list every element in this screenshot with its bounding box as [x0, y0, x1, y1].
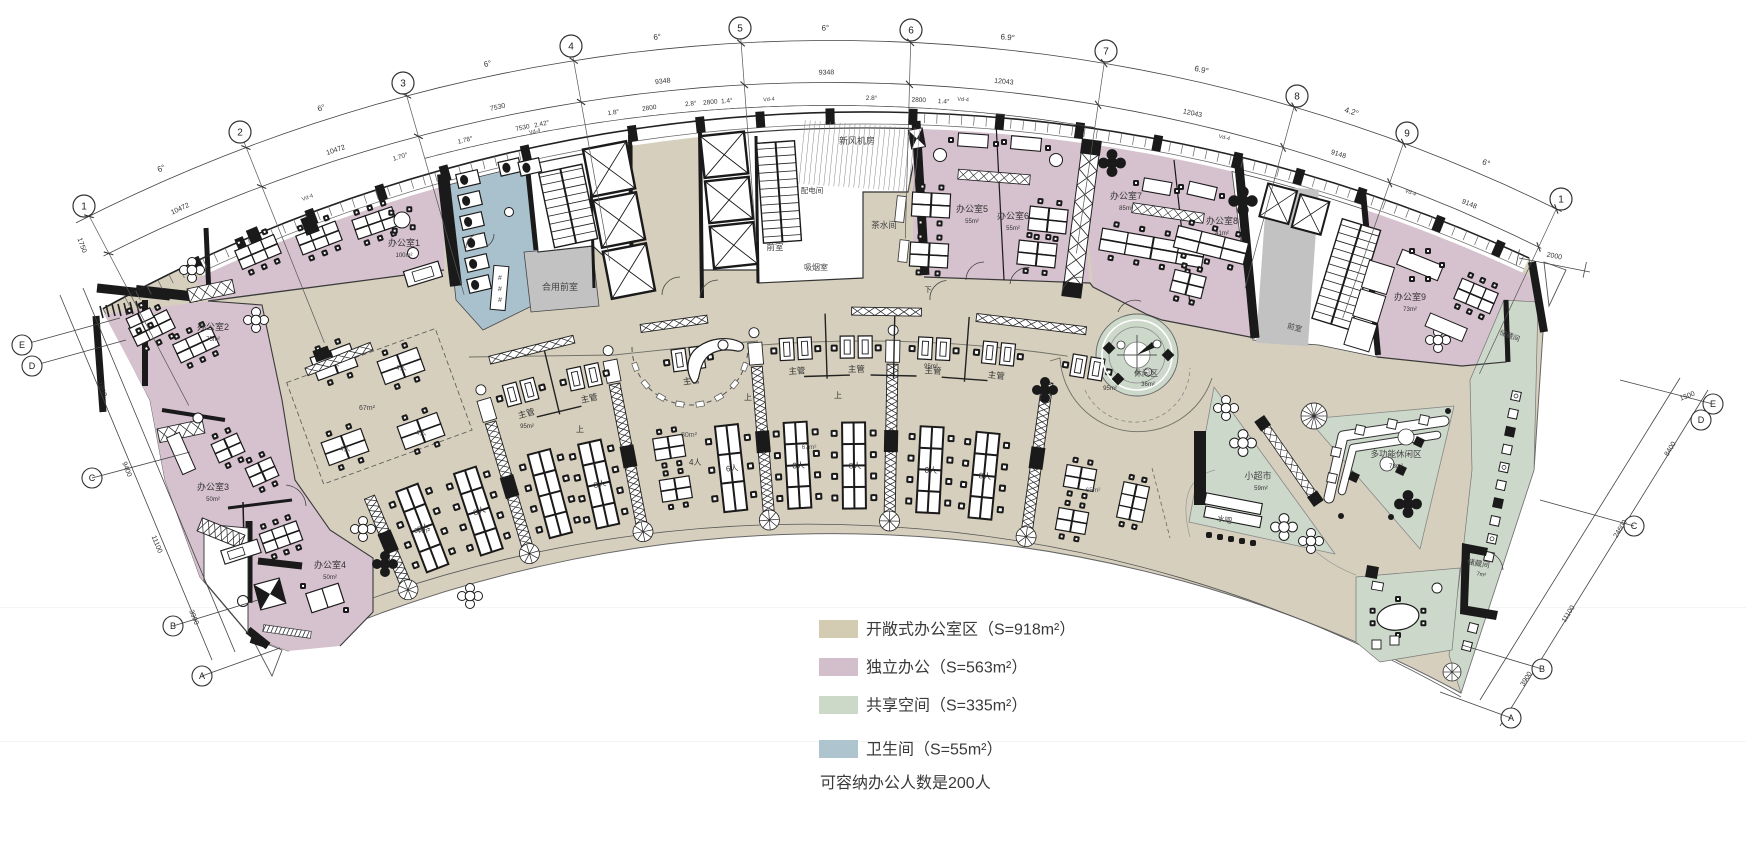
svg-text:合用前室: 合用前室	[542, 281, 578, 292]
svg-text:办公室6: 办公室6	[997, 210, 1029, 221]
svg-text:A: A	[1508, 713, 1514, 723]
svg-text:55m²: 55m²	[1006, 226, 1020, 232]
svg-text:办公室8: 办公室8	[1206, 215, 1238, 226]
svg-text:67m²: 67m²	[414, 528, 431, 535]
svg-text:4人: 4人	[340, 445, 351, 453]
svg-text:主管: 主管	[987, 370, 1005, 382]
svg-text:上: 上	[576, 425, 584, 434]
svg-text:65m²: 65m²	[1086, 487, 1102, 494]
svg-text:6: 6	[908, 26, 914, 37]
svg-text:小超市: 小超市	[1244, 470, 1271, 481]
svg-text:#: #	[498, 275, 503, 282]
svg-text:100m²: 100m²	[395, 253, 412, 259]
svg-text:办公室3: 办公室3	[197, 481, 229, 492]
svg-text:2.8°: 2.8°	[866, 94, 878, 102]
svg-text:4人: 4人	[396, 364, 407, 372]
svg-text:E: E	[19, 340, 25, 350]
svg-text:36m²: 36m²	[1141, 382, 1155, 388]
svg-text:吸烟室: 吸烟室	[804, 262, 828, 272]
svg-text:50m²: 50m²	[206, 497, 220, 503]
svg-text:主管: 主管	[848, 364, 865, 374]
svg-text:共享空间（S=335m²）: 共享空间（S=335m²）	[866, 697, 1027, 715]
svg-text:独立办公（S=563m²）: 独立办公（S=563m²）	[866, 659, 1027, 677]
svg-text:D: D	[1698, 415, 1705, 425]
svg-text:8人: 8人	[792, 461, 805, 471]
svg-text:办公室1: 办公室1	[388, 237, 420, 248]
svg-text:卫生间（S=55m²）: 卫生间（S=55m²）	[866, 741, 1002, 759]
svg-text:8人: 8人	[924, 466, 937, 476]
svg-text:85m²: 85m²	[1119, 206, 1133, 212]
svg-text:主管: 主管	[788, 365, 806, 376]
svg-text:4人: 4人	[416, 429, 427, 437]
svg-text:95m²: 95m²	[924, 364, 938, 370]
svg-text:E: E	[1710, 399, 1716, 409]
svg-text:4人: 4人	[689, 458, 701, 467]
svg-text:2.8°: 2.8°	[685, 99, 698, 108]
svg-text:#: #	[498, 297, 503, 304]
svg-text:1: 1	[81, 202, 87, 213]
svg-text:1: 1	[1558, 195, 1564, 206]
svg-text:9: 9	[1404, 129, 1410, 140]
svg-text:#: #	[498, 286, 503, 293]
svg-text:6°: 6°	[653, 32, 662, 42]
svg-text:配电间: 配电间	[801, 185, 824, 195]
svg-text:办公室4: 办公室4	[314, 559, 346, 570]
svg-text:上: 上	[744, 393, 752, 402]
svg-text:80m²: 80m²	[681, 432, 698, 439]
svg-text:78m²: 78m²	[1389, 464, 1403, 470]
svg-text:下: 下	[925, 286, 932, 294]
svg-text:前室: 前室	[766, 242, 784, 252]
svg-text:上: 上	[834, 391, 842, 400]
svg-text:2: 2	[237, 128, 243, 139]
svg-text:新风机房: 新风机房	[839, 135, 875, 146]
svg-text:办公室7: 办公室7	[1110, 190, 1142, 201]
svg-text:Vd-4: Vd-4	[957, 97, 969, 104]
svg-text:59m²: 59m²	[1254, 486, 1268, 492]
svg-text:办公室9: 办公室9	[1394, 291, 1426, 302]
svg-text:开敞式办公室区（S=918m²）: 开敞式办公室区（S=918m²）	[866, 621, 1075, 639]
svg-text:茶水间: 茶水间	[871, 220, 897, 230]
svg-text:办公室5: 办公室5	[956, 203, 988, 214]
svg-text:可容纳办公人数是200人: 可容纳办公人数是200人	[820, 774, 991, 792]
svg-text:1.4°: 1.4°	[938, 97, 950, 106]
svg-text:50m²: 50m²	[323, 575, 337, 581]
svg-text:多功能休闲区: 多功能休闲区	[1370, 449, 1422, 459]
svg-text:C: C	[1631, 521, 1638, 531]
svg-text:休闲区: 休闲区	[1134, 368, 1158, 378]
svg-text:55m²: 55m²	[965, 219, 979, 225]
svg-text:8人: 8人	[849, 461, 862, 470]
svg-text:9348: 9348	[819, 69, 835, 76]
svg-text:2800: 2800	[911, 97, 926, 105]
svg-text:Vd-4: Vd-4	[763, 97, 775, 104]
svg-text:6人: 6人	[725, 463, 738, 473]
svg-text:67m²: 67m²	[359, 405, 376, 412]
svg-text:6.9°: 6.9°	[1000, 32, 1015, 42]
svg-text:1.4°: 1.4°	[721, 96, 734, 105]
svg-text:95m²: 95m²	[1103, 386, 1117, 392]
svg-text:41m²: 41m²	[1215, 231, 1229, 237]
svg-text:B: B	[1539, 664, 1545, 674]
svg-text:D: D	[29, 361, 36, 371]
svg-text:6°: 6°	[821, 23, 829, 32]
svg-text:8人: 8人	[978, 471, 991, 481]
svg-text:75m²: 75m²	[206, 337, 220, 343]
svg-text:7: 7	[1103, 47, 1109, 58]
svg-text:73m²: 73m²	[1403, 307, 1417, 313]
svg-text:办公室2: 办公室2	[197, 321, 229, 332]
svg-text:3: 3	[400, 79, 406, 90]
svg-text:95m²: 95m²	[520, 424, 534, 430]
svg-text:A: A	[199, 671, 205, 681]
svg-text:67m²: 67m²	[802, 444, 818, 451]
svg-text:B: B	[170, 621, 176, 631]
svg-text:4: 4	[568, 42, 574, 53]
svg-text:5: 5	[737, 24, 743, 35]
svg-text:8: 8	[1294, 92, 1300, 103]
